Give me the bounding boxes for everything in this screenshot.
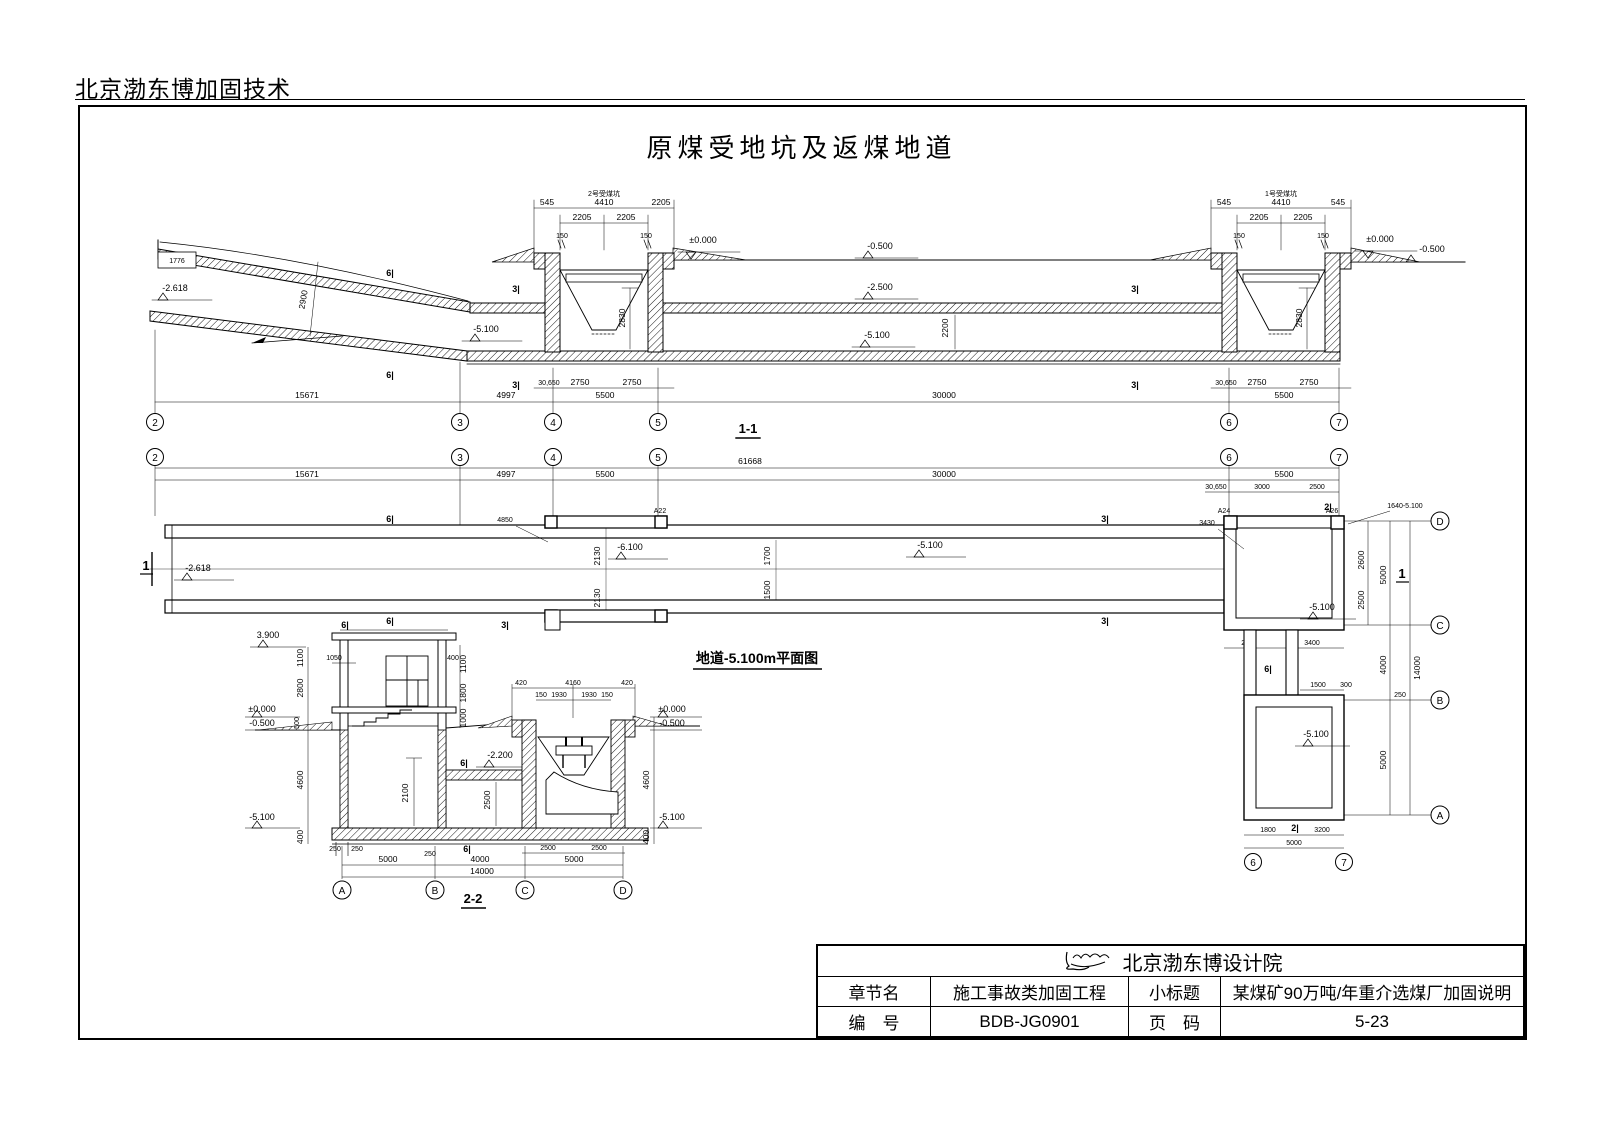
grid-bubble: 6 xyxy=(1250,858,1256,869)
section-cut-mark: 1 xyxy=(1398,566,1405,581)
dim-label: 2500 xyxy=(591,845,607,852)
dim-label: 3200 xyxy=(1314,827,1330,834)
level-label: -5.100 xyxy=(249,812,275,822)
dim-label: 5500 xyxy=(1275,469,1294,479)
dim-label: 61668 xyxy=(738,456,762,466)
grid-bubble: 2 xyxy=(152,453,158,464)
dim-label: 150 xyxy=(1317,233,1329,240)
dim-label: 2130 xyxy=(592,588,602,607)
dim-label: 5500 xyxy=(596,390,615,400)
subtitle-label: 小标题 xyxy=(1128,977,1220,1006)
grid-bubble: B xyxy=(432,886,439,897)
grid-bubble: D xyxy=(619,886,626,897)
level-label: ±0.000 xyxy=(689,235,716,245)
dim-label: 2130 xyxy=(592,546,602,565)
dim-label: 1930 xyxy=(551,692,567,699)
dim-label: 545 xyxy=(1217,197,1231,207)
level-label: -5.100 xyxy=(917,540,943,550)
grid-bubble: 5 xyxy=(655,453,661,464)
dim-label: 1700 xyxy=(762,546,772,565)
coal-pit-left: 2830 xyxy=(534,253,674,352)
grid-bubble: 3 xyxy=(457,453,463,464)
dim-label: 4000 xyxy=(471,854,490,864)
dim-label: 2750 xyxy=(1248,377,1267,387)
dim-label: 545 xyxy=(540,197,554,207)
page-label: 页 码 xyxy=(1128,1007,1220,1036)
dim-label: 150 xyxy=(556,233,568,240)
grid-bubble: C xyxy=(521,886,528,897)
dim-label: 250 xyxy=(1394,692,1406,699)
level-label: -2.618 xyxy=(185,563,211,573)
plan-right-dims: 2600 2500 5000 4000 5000 250 14000 1 D C… xyxy=(1344,512,1449,824)
level-label: -5.100 xyxy=(1303,729,1329,739)
level-label: -2.200 xyxy=(487,750,513,760)
level-label: -5.100 xyxy=(1309,602,1335,612)
number-value: BDB-JG0901 xyxy=(930,1007,1128,1036)
dim-label: 2100 xyxy=(400,783,410,802)
drawing-canvas: 1776 2900 2830 xyxy=(78,105,1523,1036)
dim-label: 5500 xyxy=(596,469,615,479)
dim-label: 14000 xyxy=(470,866,494,876)
dim-label: 500 xyxy=(294,717,301,729)
dim-label: 2800 xyxy=(295,678,305,697)
dim-label: 4000 xyxy=(1378,655,1388,674)
dim-label: 2500 xyxy=(540,845,556,852)
dim-label: 30000 xyxy=(932,469,956,479)
dim-label: 1000 xyxy=(458,708,468,727)
wall-mark: 3| xyxy=(501,620,509,630)
chapter-label: 章节名 xyxy=(818,977,930,1006)
dim-label: 4997 xyxy=(497,469,516,479)
design-institute-logo-icon xyxy=(1059,948,1117,974)
dim-label: 4997 xyxy=(497,390,516,400)
dim-label: 5000 xyxy=(1378,750,1388,769)
dim-label: 4160 xyxy=(565,680,581,687)
grid-bubble: 4 xyxy=(550,418,556,429)
grid-bubble: A xyxy=(1437,811,1444,822)
dim-label: 400 xyxy=(295,830,305,844)
dim-label: 150 xyxy=(601,692,613,699)
dim-label: 15671 xyxy=(295,390,319,400)
wall-mark: 2| xyxy=(1291,823,1299,833)
level-label: ±0.000 xyxy=(1366,234,1393,244)
wall-mark: 6| xyxy=(460,758,468,768)
title-block-row-chapter: 章节名 施工事故类加固工程 小标题 某煤矿90万吨/年重介选煤厂加固说明 xyxy=(818,977,1523,1007)
dim-label: 4600 xyxy=(641,770,651,789)
dim-label: 1100 xyxy=(295,649,305,668)
grid-bubble: 5 xyxy=(655,418,661,429)
title-block-org: 北京渤东博设计院 xyxy=(1123,947,1283,976)
blueprint-page: { "page": { "vendor_header": "北京渤东博加固技术"… xyxy=(0,0,1606,1134)
dim-label: 545 xyxy=(1331,197,1345,207)
dim-label: 2205 xyxy=(1294,212,1313,222)
dim-label: 1776 xyxy=(169,258,185,265)
page-value: 5-23 xyxy=(1220,1007,1523,1036)
dim-label: 5000 xyxy=(1378,565,1388,584)
level-label: -0.500 xyxy=(659,718,685,728)
dim-label: 2205 xyxy=(1250,212,1269,222)
dim-label: 150 xyxy=(1233,233,1245,240)
level-label: 3.900 xyxy=(257,630,280,640)
header-rule xyxy=(75,99,1525,100)
wall-mark: 3| xyxy=(1131,284,1139,294)
subtitle-value: 某煤矿90万吨/年重介选煤厂加固说明 xyxy=(1220,977,1523,1006)
chapter-value: 施工事故类加固工程 xyxy=(930,977,1128,1006)
wall-mark: 3| xyxy=(1101,616,1109,626)
dim-label: 4410 xyxy=(1272,197,1291,207)
column-label: A24 xyxy=(1218,508,1231,515)
section-1-1-caption: 1-1 xyxy=(739,421,758,436)
dim-label: 250 xyxy=(329,846,341,853)
level-label: -5.100 xyxy=(473,324,499,334)
dim-label: 420 xyxy=(621,680,633,687)
leader-label: 3430 xyxy=(1199,520,1215,527)
dim-label: 5500 xyxy=(1275,390,1294,400)
dim-label: 2900 xyxy=(296,289,309,310)
wall-mark: 6| xyxy=(386,370,394,380)
grid-bubble: D xyxy=(1436,517,1443,528)
section-1-1-drawing: 1776 2900 2830 xyxy=(147,189,1466,438)
coal-pit-right: 2830 xyxy=(1211,253,1351,352)
grid-bubbles-section22: A B C D xyxy=(333,881,632,899)
dim-label: 2750 xyxy=(1300,377,1319,387)
grid-bubble: B xyxy=(1437,696,1444,707)
level-label: -6.100 xyxy=(617,542,643,552)
dim-label: 30,650 xyxy=(1215,380,1237,387)
grid-bubble: A xyxy=(339,886,346,897)
dim-label: 2205 xyxy=(617,212,636,222)
dim-label: 5000 xyxy=(1286,840,1302,847)
wall-mark: 6| xyxy=(386,514,394,524)
dim-label: 400 xyxy=(641,830,651,844)
dim-label: 250 xyxy=(424,851,436,858)
grid-bubble: 6 xyxy=(1226,453,1232,464)
grid-bubble: 3 xyxy=(457,418,463,429)
dim-label: 1800 xyxy=(458,683,468,702)
dim-label: 2830 xyxy=(617,308,627,327)
dim-label: 1500 xyxy=(762,580,772,599)
dim-label: 1050 xyxy=(326,655,342,662)
level-label: -2.618 xyxy=(162,283,188,293)
wall-mark: 3| xyxy=(512,380,520,390)
number-label: 编 号 xyxy=(818,1007,930,1036)
title-block-row-number: 编 号 BDB-JG0901 页 码 5-23 xyxy=(818,1007,1523,1036)
wall-mark: 2| xyxy=(1324,502,1332,512)
dim-label: 2500 xyxy=(482,790,492,809)
dim-label: 2830 xyxy=(1294,308,1304,327)
level-label: -0.500 xyxy=(249,718,275,728)
wall-mark: 3| xyxy=(1101,514,1109,524)
wall-mark: 6| xyxy=(341,620,349,630)
grid-bubble: 6 xyxy=(1226,418,1232,429)
dim-label: 4410 xyxy=(595,197,614,207)
section-2-2-caption: 2-2 xyxy=(464,891,483,906)
dim-label: 150 xyxy=(640,233,652,240)
wall-mark: 6| xyxy=(386,268,394,278)
dim-label: 2600 xyxy=(1356,550,1366,569)
dim-label: 3000 xyxy=(1254,484,1270,491)
pit-section-2-2 xyxy=(512,720,635,828)
dim-label: 5000 xyxy=(379,854,398,864)
dim-label: 250 xyxy=(351,846,363,853)
dim-label: 2750 xyxy=(571,377,590,387)
dim-label: 30000 xyxy=(932,390,956,400)
section-cut-mark: 1 xyxy=(142,558,149,573)
dim-label: 1500 xyxy=(1310,682,1326,689)
dim-label: 30,650 xyxy=(538,380,560,387)
grid-bubble: 7 xyxy=(1336,418,1342,429)
leader-label: 4850 xyxy=(497,517,513,524)
grid-bubble: 4 xyxy=(550,453,556,464)
grid-bubble: 7 xyxy=(1336,453,1342,464)
dim-label: 1100 xyxy=(458,655,468,674)
wall-mark: 6| xyxy=(386,616,394,626)
dim-label: 1930 xyxy=(581,692,597,699)
level-label: -0.500 xyxy=(867,241,893,251)
dim-label: 420 xyxy=(515,680,527,687)
dim-label: 2750 xyxy=(623,377,642,387)
level-label: ±0.000 xyxy=(248,704,275,714)
dim-label: 30,650 xyxy=(1205,484,1227,491)
dim-label: 150 xyxy=(535,692,547,699)
wall-mark: 3| xyxy=(512,284,520,294)
plan-caption: 地道-5.100m平面图 xyxy=(696,650,818,666)
dim-label: 2205 xyxy=(573,212,592,222)
dim-label: 5000 xyxy=(565,854,584,864)
leader-label: 1640-5.100 xyxy=(1387,503,1423,510)
dim-label: 300 xyxy=(1340,682,1352,689)
dim-label: 1800 xyxy=(1260,827,1276,834)
wall-mark: 6| xyxy=(1264,664,1272,674)
level-label: ±0.000 xyxy=(658,704,685,714)
dim-label: 2200 xyxy=(940,318,950,337)
wall-mark: 6| xyxy=(463,844,471,854)
level-label: -2.500 xyxy=(867,282,893,292)
dim-label: 2500 xyxy=(1309,484,1325,491)
grid-bubble: C xyxy=(1436,621,1443,632)
dim-label: 3400 xyxy=(1304,640,1320,647)
level-label: -0.500 xyxy=(1419,244,1445,254)
dim-label: 2205 xyxy=(652,197,671,207)
dim-label: 4600 xyxy=(295,770,305,789)
dim-label: 15671 xyxy=(295,469,319,479)
dim-label: 14000 xyxy=(1412,656,1422,680)
grid-bubble: 2 xyxy=(152,418,158,429)
section-2-2-drawing: -2.200 6| 420 4160 420 150 xyxy=(245,620,702,908)
title-block-org-row: 北京渤东博设计院 xyxy=(818,946,1523,977)
dim-label: 2500 xyxy=(1356,590,1366,609)
level-label: -5.100 xyxy=(864,330,890,340)
wall-mark: 3| xyxy=(1131,380,1139,390)
grid-bubble: 7 xyxy=(1341,858,1347,869)
title-block: 北京渤东博设计院 章节名 施工事故类加固工程 小标题 某煤矿90万吨/年重介选煤… xyxy=(816,944,1525,1038)
column-label: A22 xyxy=(654,508,667,515)
